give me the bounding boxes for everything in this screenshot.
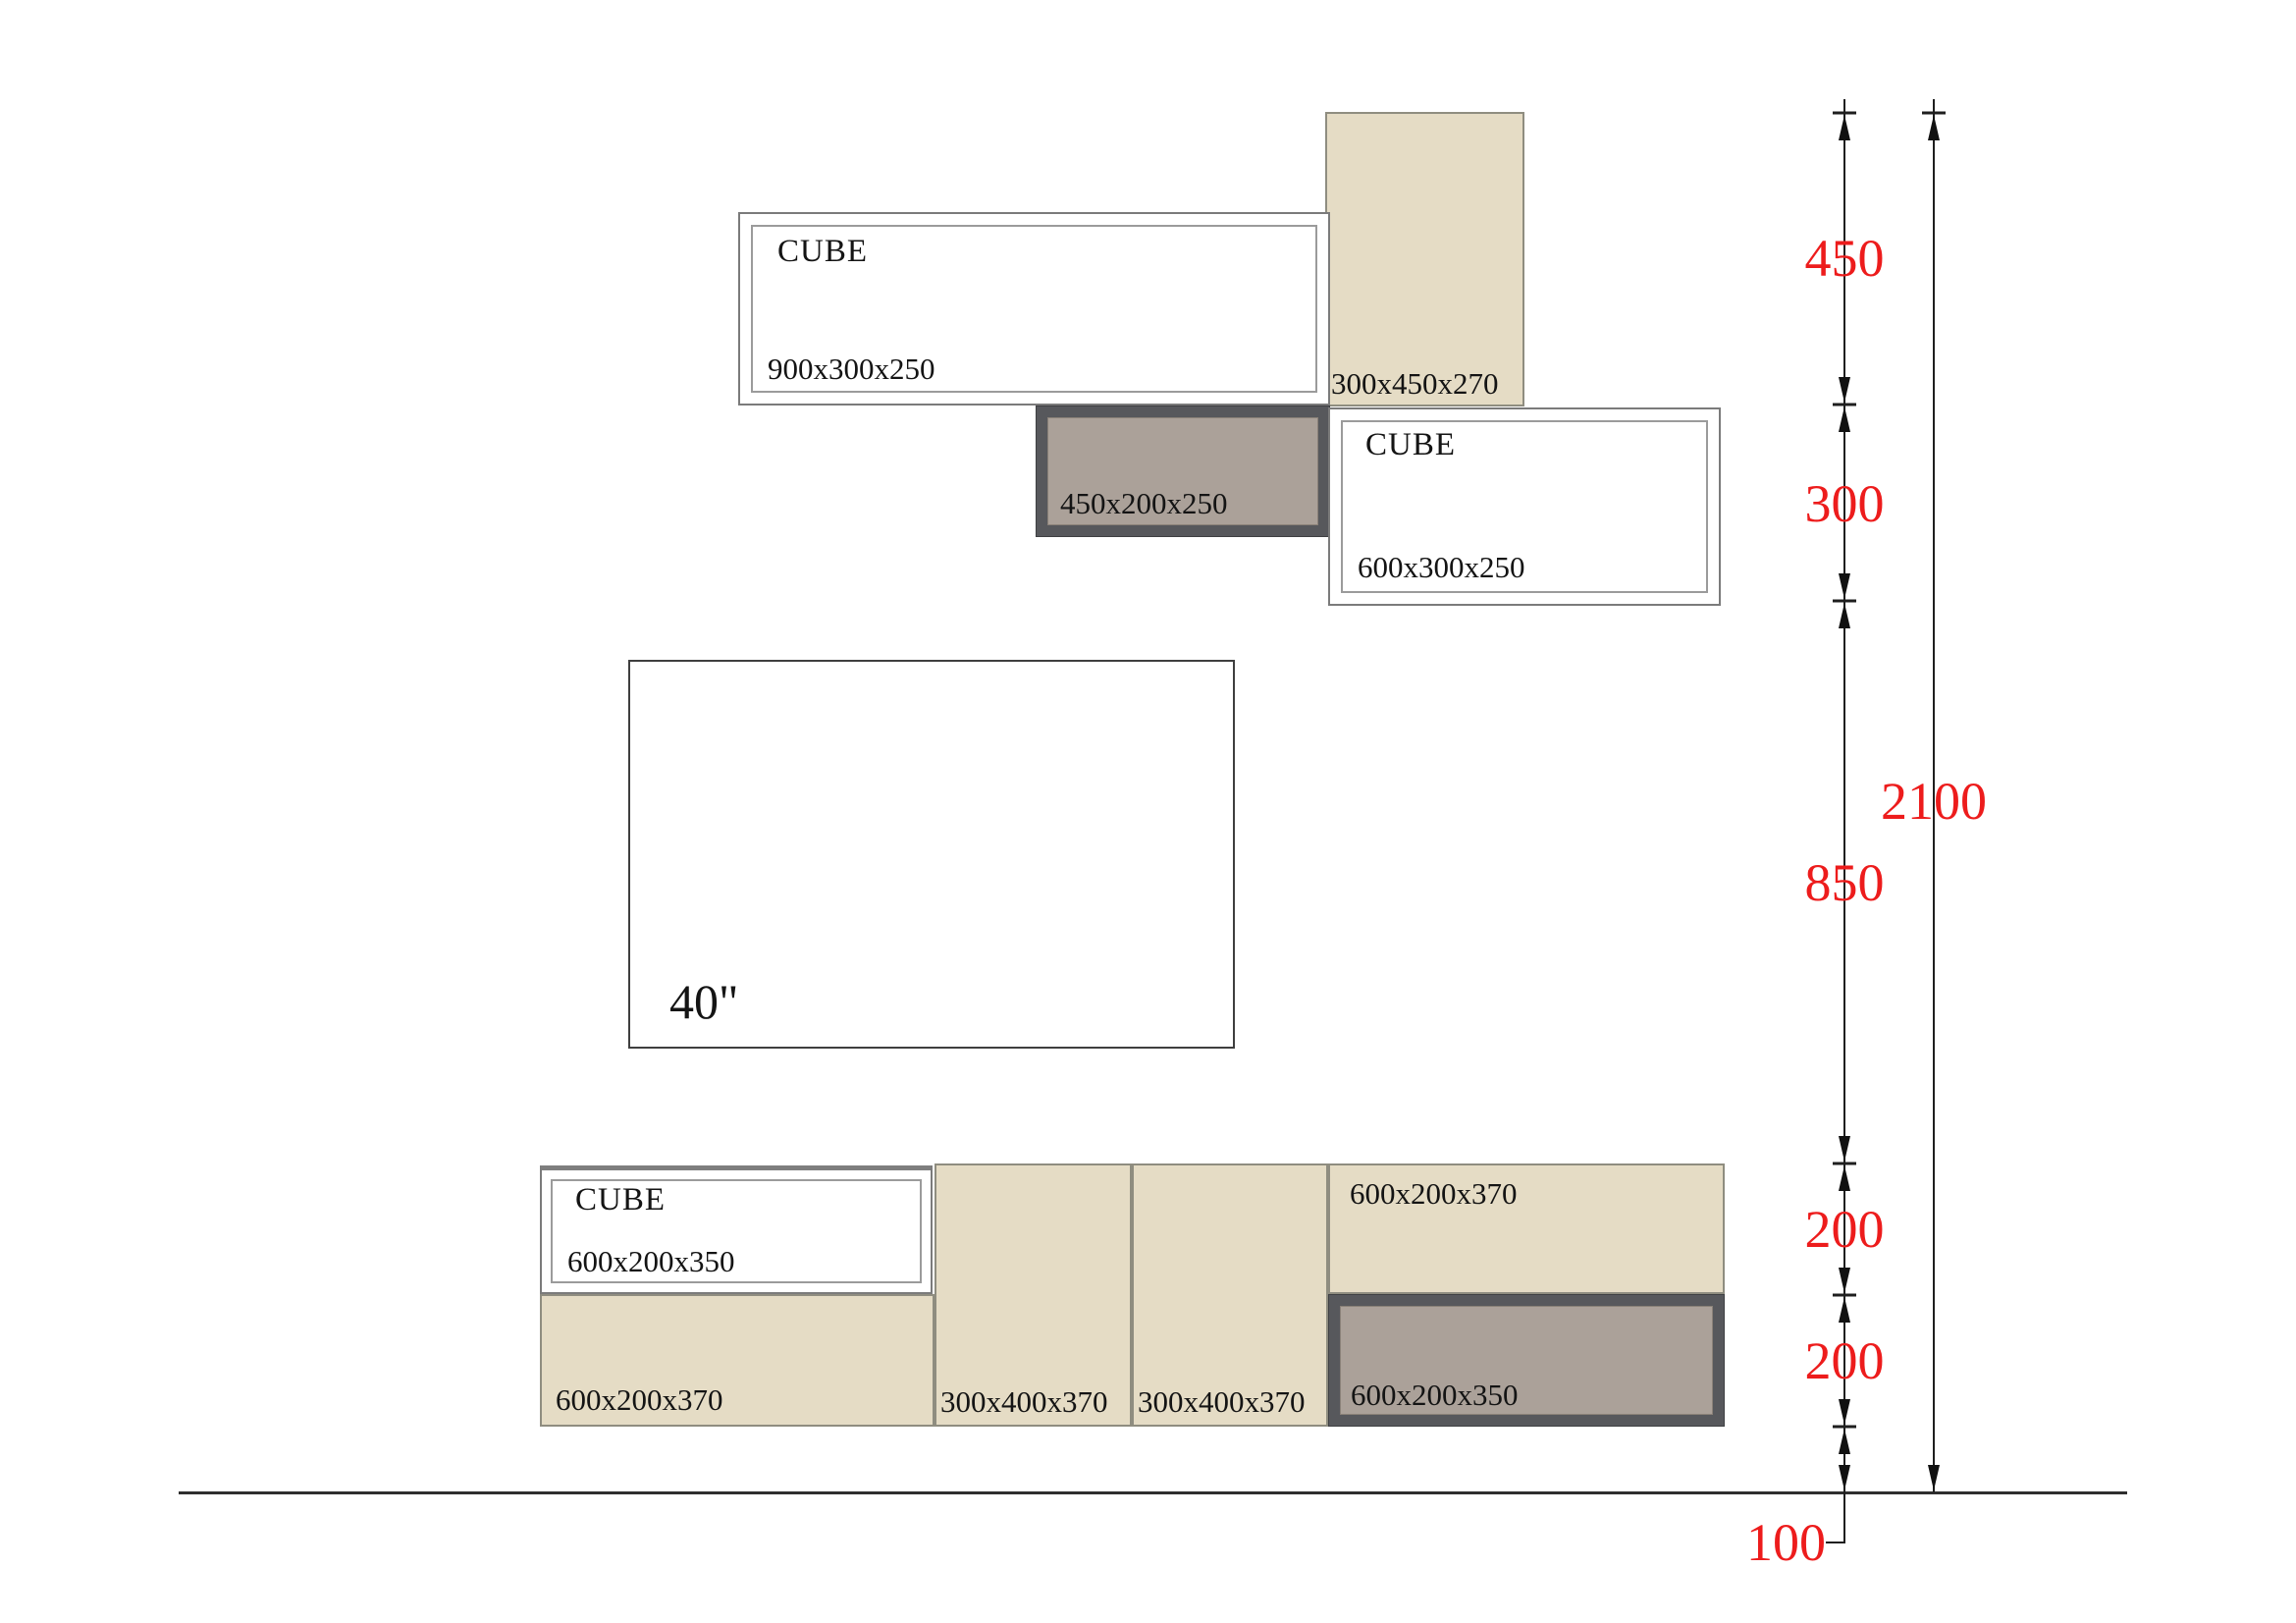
dimension-line-segments	[1843, 103, 1845, 1543]
dim-100-leader	[1826, 1542, 1844, 1543]
cube-box-900x300: CUBE 900x300x250	[738, 212, 1330, 406]
base-box-right-top-600x200x370: 600x200x370	[1328, 1163, 1725, 1294]
dim-value-450: 450	[1805, 232, 1885, 285]
tv-box: 40"	[628, 660, 1235, 1049]
shelf-gray-size-label: 450x200x250	[1060, 487, 1228, 520]
dim-arrow-down	[1839, 1399, 1850, 1425]
base-col2-size-label: 300x400x370	[1138, 1385, 1306, 1419]
drawing-canvas: 300x450x270 CUBE 900x300x250 450x200x250…	[0, 0, 2296, 1623]
dim-arrow-down	[1839, 573, 1850, 599]
dim-arrow-down	[1839, 377, 1850, 403]
cube-right-label: CUBE	[1365, 427, 1456, 462]
dim-arrow-up	[1839, 115, 1850, 140]
dim-tick-stub	[1843, 99, 1845, 113]
dim-arrow-up	[1839, 1429, 1850, 1454]
shelf-box-450x200: 450x200x250	[1036, 406, 1330, 537]
dim-arrow-down	[1839, 1268, 1850, 1293]
cube-top-label: CUBE	[777, 234, 868, 269]
dim-value-200-lower: 200	[1805, 1334, 1885, 1387]
base-left-size-label: 600x200x370	[556, 1383, 723, 1417]
tv-size-label: 40"	[669, 975, 738, 1029]
shelf-tall-size-label: 300x450x270	[1331, 367, 1499, 401]
floor-line	[179, 1491, 2127, 1494]
dim-arrow-down	[1839, 1136, 1850, 1162]
shelf-box-300x450: 300x450x270	[1325, 112, 1524, 406]
dim-arrow-up	[1839, 406, 1850, 432]
cube-bottom-size-label: 600x200x350	[567, 1245, 735, 1278]
dim-arrow-up	[1839, 1165, 1850, 1191]
base-box-left-600x200x370: 600x200x370	[540, 1294, 934, 1427]
cube-box-600x200: CUBE 600x200x350	[540, 1165, 933, 1294]
dim-arrow-up	[1839, 603, 1850, 628]
base-right-top-size-label: 600x200x370	[1350, 1177, 1518, 1211]
dim-value-850: 850	[1805, 856, 1885, 909]
dim-arrow-up	[1839, 1297, 1850, 1323]
base-box-col2-300x400x370: 300x400x370	[1132, 1163, 1328, 1427]
dim-arrow-up	[1928, 115, 1940, 140]
base-right-bottom-size-label: 600x200x350	[1351, 1379, 1519, 1412]
dim-tick-stub	[1933, 99, 1935, 113]
cube-bottom-label: CUBE	[575, 1182, 666, 1217]
dim-value-2100: 2100	[1881, 775, 1987, 828]
base-box-col1-300x400x370: 300x400x370	[934, 1163, 1132, 1427]
dim-value-300: 300	[1805, 477, 1885, 530]
base-col1-size-label: 300x400x370	[940, 1385, 1108, 1419]
dim-arrow-down	[1928, 1465, 1940, 1490]
dim-arrow-down	[1839, 1465, 1850, 1490]
cube-right-size-label: 600x300x250	[1358, 551, 1525, 584]
dim-value-200-upper: 200	[1805, 1203, 1885, 1256]
cube-top-size-label: 900x300x250	[768, 352, 935, 386]
dim-value-100: 100	[1746, 1516, 1826, 1569]
base-box-right-bottom-600x200x350: 600x200x350	[1328, 1294, 1725, 1427]
cube-box-600x300: CUBE 600x300x250	[1328, 407, 1721, 606]
